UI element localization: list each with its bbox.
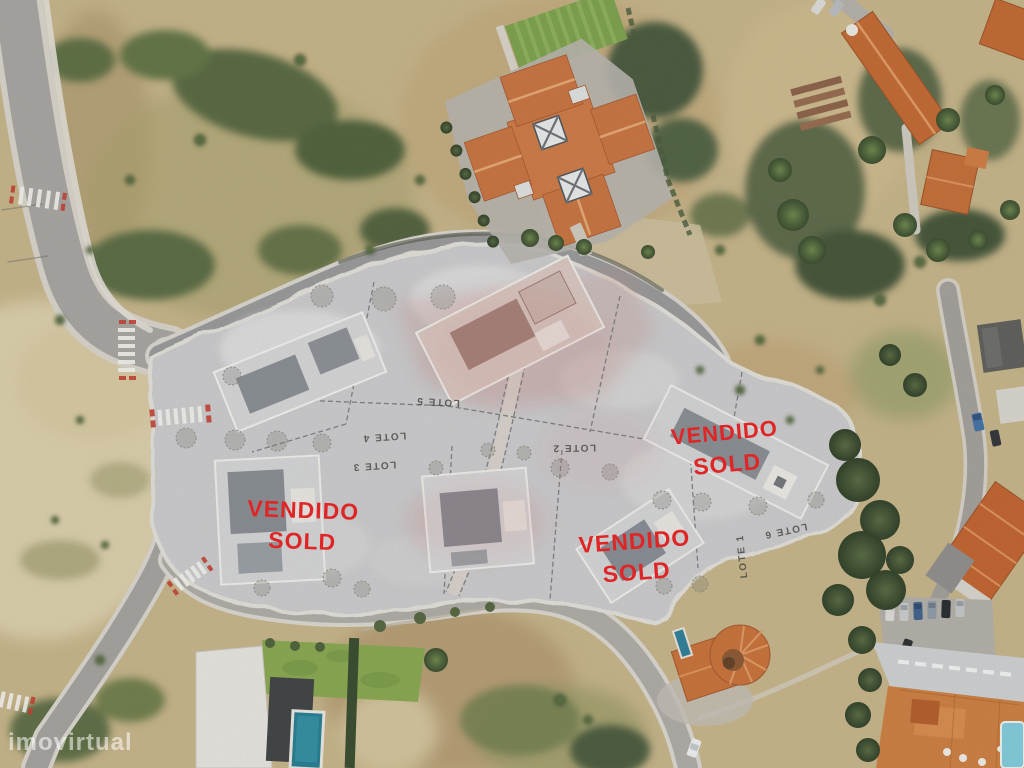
aerial-photo: LOTE 5 LOTE 4 LOTE 3 LOTE 2 LOTE 6 LOTE … (0, 0, 1024, 768)
sold-label-line1: VENDIDO (247, 495, 360, 525)
imovirtual-watermark: imovirtual (8, 729, 133, 756)
aerial-photo-listing: LOTE 5 LOTE 4 LOTE 3 LOTE 2 LOTE 6 LOTE … (0, 0, 1024, 768)
sold-label-line2: SOLD (602, 557, 672, 588)
sold-label-line2: SOLD (268, 527, 337, 555)
lot-label-lote2: LOTE 2 (552, 442, 596, 454)
lot-label-lote5: LOTE 5 (416, 395, 461, 408)
